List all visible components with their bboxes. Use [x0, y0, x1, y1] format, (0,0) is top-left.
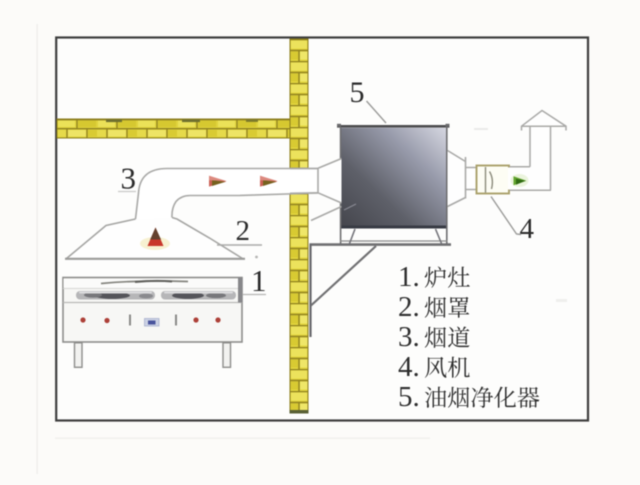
svg-text:5.: 5.: [398, 381, 420, 413]
svg-text:1: 1: [251, 263, 267, 298]
svg-text:5: 5: [350, 76, 365, 109]
svg-text:3: 3: [121, 161, 137, 196]
svg-text:2: 2: [236, 215, 251, 247]
svg-text:3.: 3.: [398, 321, 420, 353]
svg-text:4.: 4.: [398, 351, 420, 383]
svg-text:1.: 1.: [398, 261, 420, 293]
svg-text:4: 4: [520, 213, 535, 245]
svg-text:2.: 2.: [398, 291, 420, 323]
